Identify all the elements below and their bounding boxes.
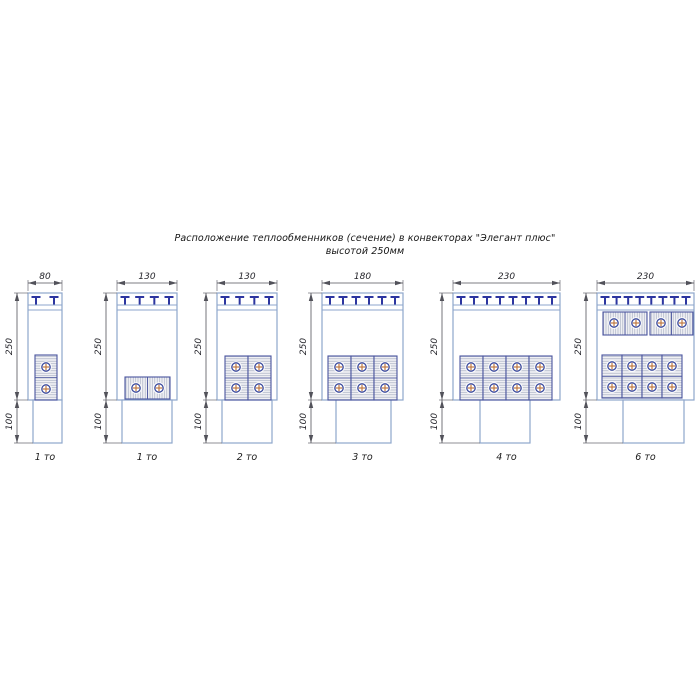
dim-arrow <box>104 435 108 443</box>
dim-arrow <box>440 400 444 408</box>
dim-arrow <box>322 281 330 285</box>
dim-arrow <box>54 281 62 285</box>
duct-height-dim-label: 100 <box>299 413 309 430</box>
figure-label: 2 то <box>237 452 258 463</box>
air-duct <box>33 400 62 443</box>
figure-label: 4 то <box>496 452 517 463</box>
dim-arrow <box>15 392 19 400</box>
convector-figure-6: 2302501006 то <box>574 272 694 463</box>
convector-figure-5: 2302501004 то <box>430 272 560 463</box>
convector-figure-2: 1302501001 то <box>94 272 177 463</box>
width-dim-label: 230 <box>498 272 515 282</box>
height-dim-label: 250 <box>430 338 440 355</box>
duct-height-dim-label: 100 <box>574 413 584 430</box>
height-dim-label: 250 <box>94 338 104 355</box>
duct-height-dim-label: 100 <box>94 413 104 430</box>
air-duct <box>480 400 530 443</box>
dim-arrow <box>204 293 208 301</box>
figure-label: 6 то <box>635 452 656 463</box>
height-dim-label: 250 <box>299 338 309 355</box>
air-duct <box>623 400 684 443</box>
dim-arrow <box>584 435 588 443</box>
dim-arrow <box>117 281 125 285</box>
dim-arrow <box>309 400 313 408</box>
height-dim-label: 250 <box>574 338 584 355</box>
width-dim-label: 80 <box>39 272 51 282</box>
dim-arrow <box>686 281 694 285</box>
air-duct <box>336 400 391 443</box>
dim-arrow <box>440 435 444 443</box>
dim-arrow <box>395 281 403 285</box>
duct-height-dim-label: 100 <box>194 413 204 430</box>
dim-arrow <box>309 435 313 443</box>
dim-arrow <box>204 400 208 408</box>
dim-arrow <box>15 435 19 443</box>
figure-label: 1 то <box>137 452 158 463</box>
dim-arrow <box>584 293 588 301</box>
dim-arrow <box>28 281 36 285</box>
dim-arrow <box>309 392 313 400</box>
dim-arrow <box>169 281 177 285</box>
convector-figure-4: 1802501003 то <box>299 272 403 463</box>
width-dim-label: 130 <box>138 272 155 282</box>
convector-figure-3: 1302501002 то <box>194 272 277 463</box>
dim-arrow <box>584 392 588 400</box>
figure-label: 1 то <box>35 452 56 463</box>
air-duct <box>122 400 172 443</box>
height-dim-label: 250 <box>194 338 204 355</box>
duct-height-dim-label: 100 <box>430 413 440 430</box>
dim-arrow <box>217 281 225 285</box>
drawing-canvas: Расположение теплообменников (сечение) в… <box>0 0 700 700</box>
dim-arrow <box>204 435 208 443</box>
dim-arrow <box>309 293 313 301</box>
width-dim-label: 230 <box>637 272 654 282</box>
dim-arrow <box>453 281 461 285</box>
dim-arrow <box>440 392 444 400</box>
dim-arrow <box>15 400 19 408</box>
dim-arrow <box>204 392 208 400</box>
dim-arrow <box>104 293 108 301</box>
duct-height-dim-label: 100 <box>5 413 15 430</box>
dim-arrow <box>440 293 444 301</box>
height-dim-label: 250 <box>5 338 15 355</box>
dim-arrow <box>584 400 588 408</box>
width-dim-label: 130 <box>238 272 255 282</box>
figure-label: 3 то <box>352 452 373 463</box>
width-dim-label: 180 <box>354 272 371 282</box>
convector-figure-1: 802501001 то <box>5 272 62 463</box>
dim-arrow <box>104 392 108 400</box>
dim-arrow <box>552 281 560 285</box>
dim-arrow <box>104 400 108 408</box>
dim-arrow <box>15 293 19 301</box>
dim-arrow <box>597 281 605 285</box>
technical-drawing: 802501001 то1302501001 то1302501002 то18… <box>0 0 700 700</box>
air-duct <box>222 400 272 443</box>
dim-arrow <box>269 281 277 285</box>
